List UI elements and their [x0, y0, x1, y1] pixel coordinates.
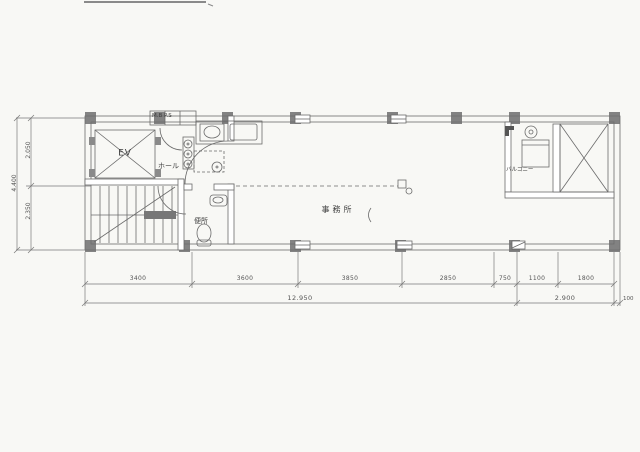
dim-left-lower: 2.350 [26, 202, 32, 219]
dim-segment-5: 750 [499, 276, 511, 282]
dim-wall-thickness: 100 [623, 297, 634, 303]
dim-segment-7: 1800 [578, 276, 594, 282]
dim-segment-4: 2850 [440, 276, 456, 282]
office-label: 事務所 [322, 206, 355, 214]
floorplan-linework [0, 0, 640, 452]
dim-segment-6: 1100 [529, 276, 545, 282]
dim-total-right: 2.900 [555, 295, 576, 302]
floor-plan-sheet: M.B P.S EV ホール 便所 事務所 バルコニー 3400 3600 38… [0, 0, 640, 452]
dim-segment-3: 3850 [342, 276, 358, 282]
dim-segment-2: 3600 [237, 276, 253, 282]
staircase [91, 179, 184, 250]
scan-artifact [84, 2, 213, 6]
dim-left-upper: 2.050 [26, 141, 32, 158]
hall-label: ホール [158, 163, 179, 170]
meter-box-label: M.B P.S [152, 114, 172, 120]
balcony-label: バルコニー [506, 168, 533, 174]
window-marks [295, 115, 525, 249]
office-area [236, 180, 412, 222]
toilet-label: 便所 [194, 218, 208, 225]
balcony-zone [505, 122, 614, 198]
elevator-label: EV [118, 150, 132, 159]
dim-left-total: 4.400 [12, 174, 18, 191]
dim-segment-1: 3400 [130, 276, 146, 282]
elevator-shaft [85, 130, 184, 185]
dim-total-main: 12.950 [287, 295, 312, 302]
